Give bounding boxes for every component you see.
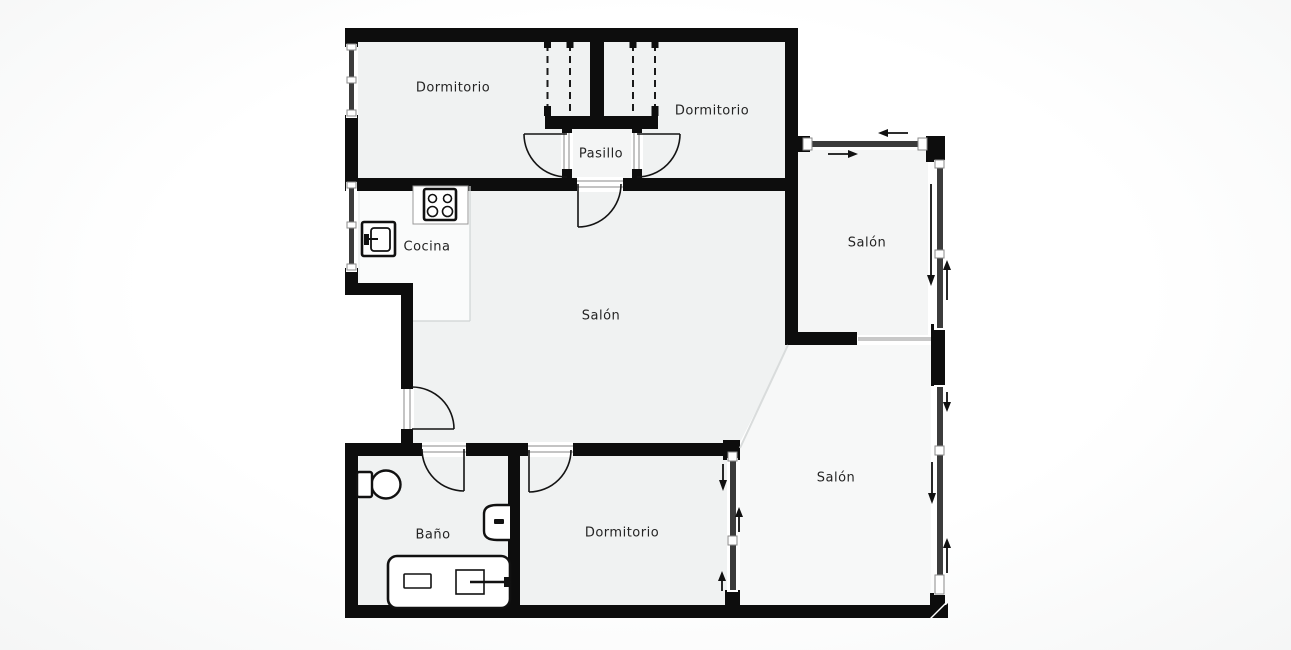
wall-bano-divider xyxy=(508,443,520,618)
wall-bottom-right-corner xyxy=(930,593,945,618)
wall-pasillo-left-cap-bottom xyxy=(562,164,572,178)
sliding-direction-arrow-tr-right-up xyxy=(943,260,951,300)
room-label-pasillo: Pasillo xyxy=(579,147,623,162)
wall-dorm-right-block-bottom xyxy=(725,590,740,618)
wall-pasillo-top xyxy=(545,116,658,129)
room-label-salon-bottom-right: Salón xyxy=(817,471,856,486)
wall-bedroom-divider xyxy=(590,28,604,129)
wall-salon-junction xyxy=(798,332,857,345)
wall-mid-horizontal-a xyxy=(345,178,578,191)
wall-left-upper-b xyxy=(345,115,358,185)
wall-pasillo-right-cap-bottom xyxy=(632,164,642,178)
sliding-direction-arrow-br-right-down-small xyxy=(943,392,951,412)
wall-top xyxy=(345,28,798,42)
wall-tr-salon-top-corner-left xyxy=(785,136,810,152)
sliding-direction-arrow-tr-right-down xyxy=(927,184,935,286)
sliding-window-tr-right xyxy=(934,160,945,330)
room-label-dormitorio-bottom: Dormitorio xyxy=(585,526,659,541)
wall-right-of-central-block xyxy=(785,28,798,345)
sliding-direction-arrow-tr-top-left xyxy=(878,129,908,137)
wall-entry-vertical-a xyxy=(401,283,413,390)
window-symbol-left-bottom xyxy=(346,182,357,272)
room-label-salon-center: Salón xyxy=(582,309,621,324)
window-symbol-left-top xyxy=(346,44,357,118)
sliding-direction-arrow-br-right-up xyxy=(943,538,951,573)
wall-left-lower xyxy=(345,443,358,618)
wall-dormitorio-bottom-top xyxy=(572,443,740,456)
wall-pasillo-right-cap-top xyxy=(632,129,642,137)
floor-dormitorio-top-left xyxy=(358,42,594,178)
wall-left-upper-a xyxy=(345,28,358,47)
threshold-line xyxy=(858,337,931,341)
room-label-dormitorio-top-left: Dormitorio xyxy=(416,81,490,96)
room-label-bano: Baño xyxy=(415,528,450,543)
wall-tr-salon-top-corner-right xyxy=(926,136,945,162)
kitchen-zone-extension xyxy=(413,288,470,321)
wall-dorm-right-block-top xyxy=(723,440,740,460)
wall-bottom xyxy=(345,605,948,618)
room-label-salon-top-right: Salón xyxy=(848,236,887,251)
room-label-cocina: Cocina xyxy=(404,240,451,255)
floor-plan: Dormitorio Dormitorio Pasillo Cocina Sal… xyxy=(0,0,1291,650)
sliding-window-br-right xyxy=(934,385,945,595)
wall-bano-top-a xyxy=(345,443,422,456)
wall-mid-horizontal-b xyxy=(622,178,798,191)
wall-right-junction-block xyxy=(931,324,945,386)
sliding-door-tr-top xyxy=(803,138,927,150)
wall-pasillo-left-cap-top xyxy=(562,129,572,137)
room-label-dormitorio-top-right: Dormitorio xyxy=(675,104,749,119)
